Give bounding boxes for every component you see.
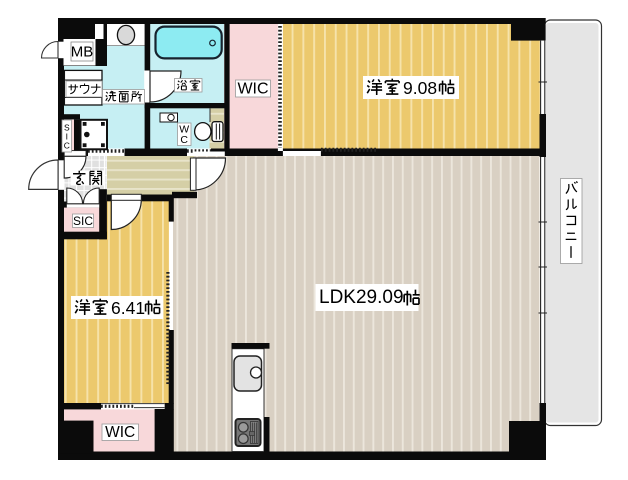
svg-text:WIC: WIC (105, 424, 135, 441)
svg-text:LDK29.09: LDK29.09 (319, 287, 404, 308)
svg-text:WIC: WIC (237, 80, 268, 97)
svg-text:6.41: 6.41 (111, 298, 145, 318)
svg-text:9.08: 9.08 (403, 78, 437, 98)
svg-text:C: C (64, 141, 70, 151)
svg-text:SIC: SIC (73, 214, 93, 228)
svg-text:C: C (180, 134, 188, 146)
svg-text:MB: MB (71, 44, 94, 61)
